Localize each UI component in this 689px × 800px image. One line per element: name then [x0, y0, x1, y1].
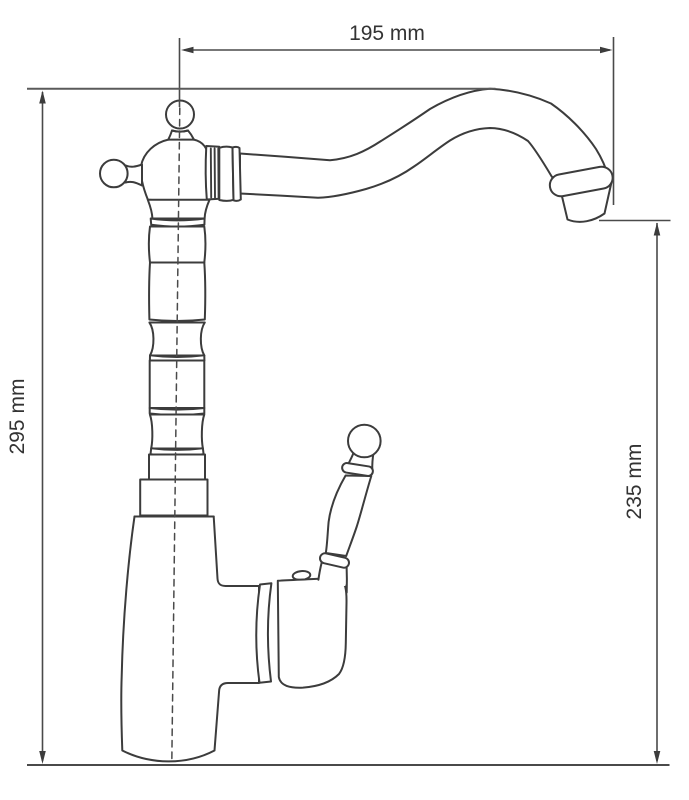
svg-text:295 mm: 295 mm — [6, 379, 29, 455]
svg-text:235 mm: 235 mm — [623, 444, 646, 520]
svg-text:195 mm: 195 mm — [349, 22, 425, 45]
